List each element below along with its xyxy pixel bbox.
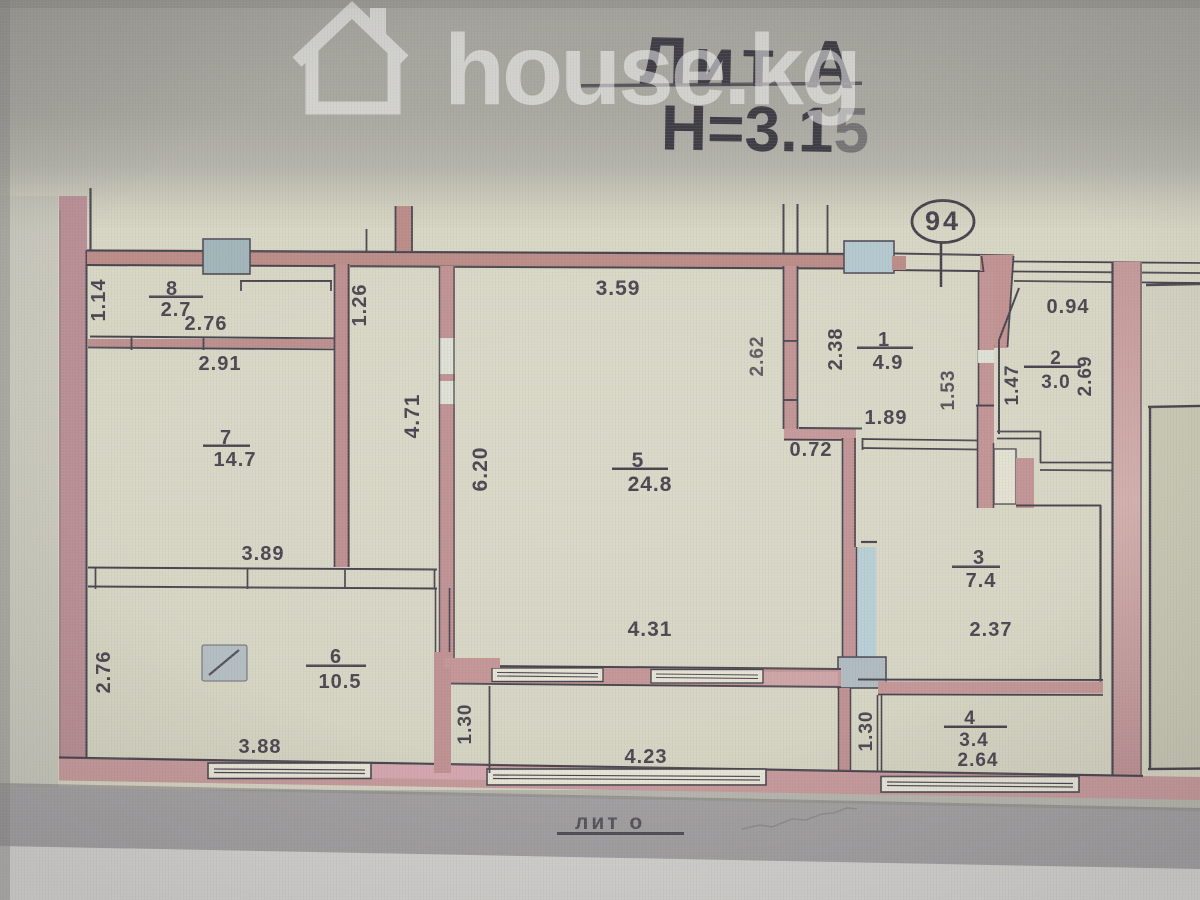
svg-text:1.53: 1.53 [938, 370, 959, 411]
svg-text:4.31: 4.31 [628, 618, 673, 641]
svg-text:1.30: 1.30 [455, 704, 476, 745]
svg-text:1.47: 1.47 [1002, 365, 1023, 406]
svg-text:0.72: 0.72 [790, 439, 833, 461]
svg-text:3.59: 3.59 [596, 277, 641, 300]
svg-text:4.23: 4.23 [625, 746, 668, 768]
svg-text:3.88: 3.88 [239, 736, 282, 758]
svg-text:2.64: 2.64 [958, 750, 999, 771]
svg-text:house.kg: house.kg [444, 14, 859, 126]
svg-text:3.4: 3.4 [959, 730, 988, 751]
svg-text:2.76: 2.76 [93, 651, 115, 694]
svg-text:1.26: 1.26 [349, 284, 371, 327]
svg-text:2.76: 2.76 [185, 313, 228, 335]
svg-text:24.8: 24.8 [628, 473, 673, 496]
svg-text:94: 94 [925, 206, 961, 236]
svg-text:14.7: 14.7 [214, 449, 257, 471]
svg-text:2.62: 2.62 [747, 336, 768, 377]
svg-text:3.0: 3.0 [1041, 372, 1070, 393]
svg-text:2.38: 2.38 [825, 328, 847, 371]
svg-text:0.94: 0.94 [1047, 296, 1090, 318]
svg-text:7.4: 7.4 [966, 570, 997, 592]
svg-text:2.37: 2.37 [970, 619, 1013, 641]
svg-text:лит о: лит о [575, 811, 645, 834]
svg-text:2.91: 2.91 [199, 353, 242, 375]
svg-text:10.5: 10.5 [319, 671, 362, 693]
svg-text:2.69: 2.69 [1075, 356, 1096, 397]
svg-text:1.89: 1.89 [865, 407, 908, 429]
svg-text:4.71: 4.71 [401, 394, 424, 439]
svg-text:4.9: 4.9 [873, 352, 904, 374]
svg-text:1.14: 1.14 [88, 279, 110, 322]
svg-text:3.89: 3.89 [242, 543, 285, 565]
svg-text:6.20: 6.20 [469, 447, 492, 492]
svg-text:1.30: 1.30 [856, 711, 877, 752]
